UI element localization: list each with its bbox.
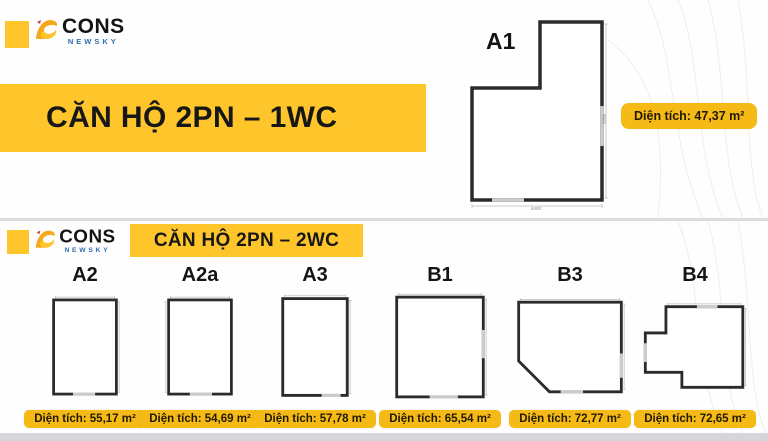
bcons-b-icon [34,229,57,251]
bcons-logo: CONS NEWSKY [34,227,116,254]
logo-cons-text: CONS [62,16,125,37]
plan-label-a2a: A2a [182,262,219,288]
accent-square [5,21,29,48]
floorplan-a3-graphic [278,293,352,401]
footer-bar [0,433,768,441]
area-badge-a2: Diện tích: 55,17 m² [24,410,146,428]
floorplan-a2a-graphic [164,294,236,400]
section-banner-2pn-2wc: CĂN HỘ 2PN – 2WC [130,224,363,257]
section-banner-2pn-1wc: CĂN HỘ 2PN – 1WC [0,84,426,152]
plan-column-b1: B1 Diện tích: 65,54 m² [375,262,505,428]
section-title: CĂN HỘ 2PN – 1WC [46,101,337,135]
floorplan-b3-graphic [514,297,626,397]
logo-newsky-text: NEWSKY [68,38,119,46]
area-badge-a1: Diện tích: 47,37 m² [621,103,757,129]
area-badge-b4: Diện tích: 72,65 m² [634,410,756,428]
plan-column-b4: B4 Diện tích: 72,65 m² [627,262,763,428]
plan-label-b1: B1 [427,262,453,288]
bcons-logo: CONS NEWSKY [34,16,125,46]
logo-cons-text: CONS [59,227,115,246]
dimension-height: 8600 [602,114,607,125]
area-badge-b1: Diện tích: 65,54 m² [379,410,501,428]
section-divider [0,218,768,221]
plan-label-a3: A3 [302,262,328,288]
section-title: CĂN HỘ 2PN – 2WC [154,230,339,252]
plan-column-a2: A2 Diện tích: 55,17 m² [20,262,150,428]
logo-newsky-text: NEWSKY [64,247,110,254]
area-badge-a3: Diện tích: 57,78 m² [254,410,376,428]
plan-label-a2: A2 [72,262,98,288]
plan-column-a2a: A2a Diện tích: 54,69 m² [135,262,265,428]
floorplan-b1-graphic [392,292,488,402]
area-badge-b3: Diện tích: 72,77 m² [509,410,631,428]
bcons-b-icon [34,18,60,42]
plan-label-b3: B3 [557,262,583,288]
floorplan-a2-graphic [49,295,121,399]
area-badge-a2a: Diện tích: 54,69 m² [139,410,261,428]
plan-column-b3: B3 Diện tích: 72,77 m² [505,262,635,428]
accent-square [7,230,29,254]
floorplan-a1-graphic: 8600 6400 [452,14,608,210]
dimension-width: 6400 [531,206,542,210]
floorplan-b4-graphic [642,302,748,392]
plan-label-b4: B4 [682,262,708,288]
plan-column-a3: A3 Diện tích: 57,78 m² [250,262,380,428]
